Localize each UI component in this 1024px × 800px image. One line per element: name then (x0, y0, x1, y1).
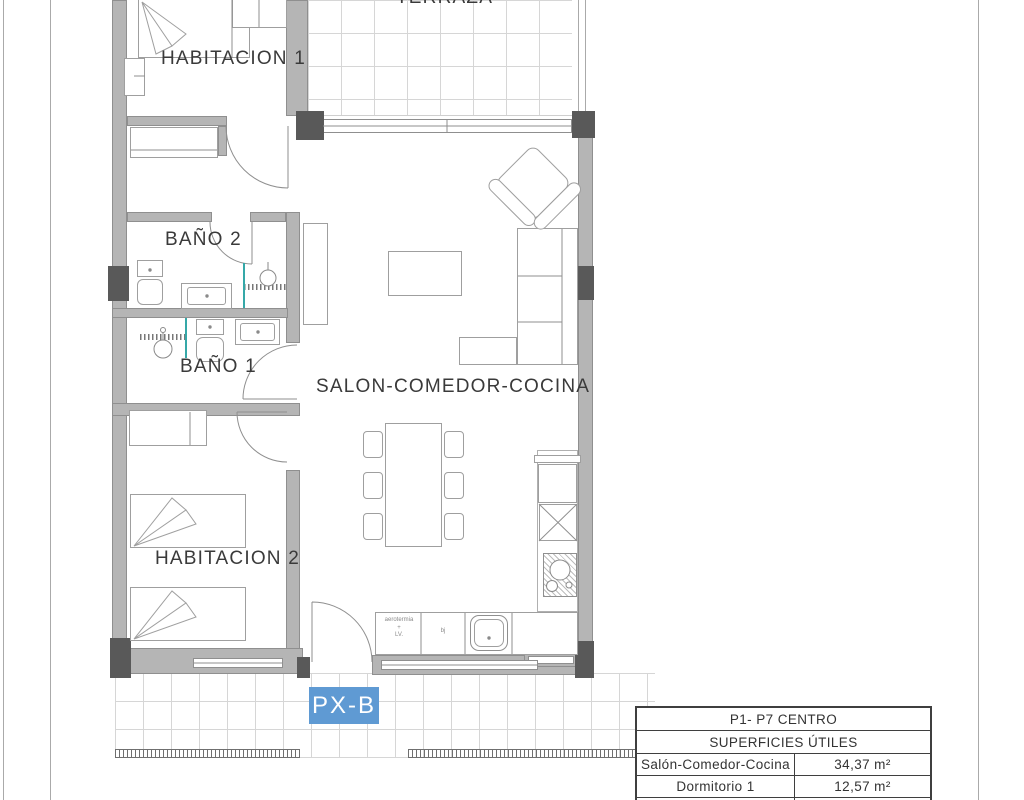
sofa-seat-lines (518, 229, 562, 364)
row-value: 34,37 m² (795, 754, 930, 775)
table-row: Salón-Comedor-Cocina 34,37 m² (637, 754, 930, 776)
toilet-valve-dot-bano2 (148, 268, 151, 271)
hob-burner-medium (547, 581, 558, 592)
door-arc-habitacion2 (237, 412, 287, 462)
hob-burner-small (566, 582, 572, 588)
pillow-fan-bed2-habitacion2 (134, 591, 196, 639)
counter-divider-lines (421, 613, 512, 654)
surface-summary-table: P1- P7 CENTRO SUPERFICIES ÚTILES Salón-C… (635, 706, 932, 800)
row-label: Dormitorio 1 (637, 776, 795, 797)
table-row: Dormitorio 1 12,57 m² (637, 776, 930, 798)
toilet-valve-dot-bano1 (208, 325, 211, 328)
door-arc-terrace (312, 602, 372, 662)
door-arc-salon (226, 126, 288, 188)
armchair (486, 139, 583, 236)
table-subtitle: SUPERFICIES ÚTILES (637, 731, 930, 753)
shower-drain-bano2 (260, 270, 276, 286)
row-value: 12,57 m² (795, 776, 930, 797)
table-subtitle-row: SUPERFICIES ÚTILES (637, 731, 930, 754)
sink-drain-dot (487, 636, 490, 639)
shower-drain-bano1 (154, 340, 172, 358)
window-centerlines (194, 663, 537, 665)
shower-tap-dot-bano1 (161, 328, 166, 333)
room-label-bano1: BAÑO 1 (180, 356, 257, 378)
shaft-cross (539, 504, 577, 541)
table-title: P1- P7 CENTRO (637, 708, 930, 730)
room-label-bano2: BAÑO 2 (165, 229, 242, 251)
sliding-door-centerline (323, 120, 571, 132)
room-label-terraza: TERRAZA (396, 0, 493, 9)
unit-badge: PX-B (309, 687, 379, 724)
plan-linework-overlay (0, 0, 1024, 800)
pillow-fan-bed1-habitacion2 (134, 498, 196, 546)
room-label-salon: SALON-COMEDOR-COCINA (316, 376, 590, 398)
basin-drain-dot-bano1 (256, 330, 259, 333)
hob-burner-large (550, 560, 570, 580)
pillow-fan-bed-habitacion1 (142, 2, 186, 54)
floor-plan-sheet: aerotermia + LV. bj (0, 0, 1024, 800)
table-title-row: P1- P7 CENTRO (637, 708, 930, 731)
basin-drain-dot-bano2 (205, 294, 208, 297)
room-label-habitacion1: HABITACION 1 (161, 48, 306, 70)
row-label: Salón-Comedor-Cocina (637, 754, 795, 775)
room-label-habitacion2: HABITACION 2 (155, 548, 300, 570)
